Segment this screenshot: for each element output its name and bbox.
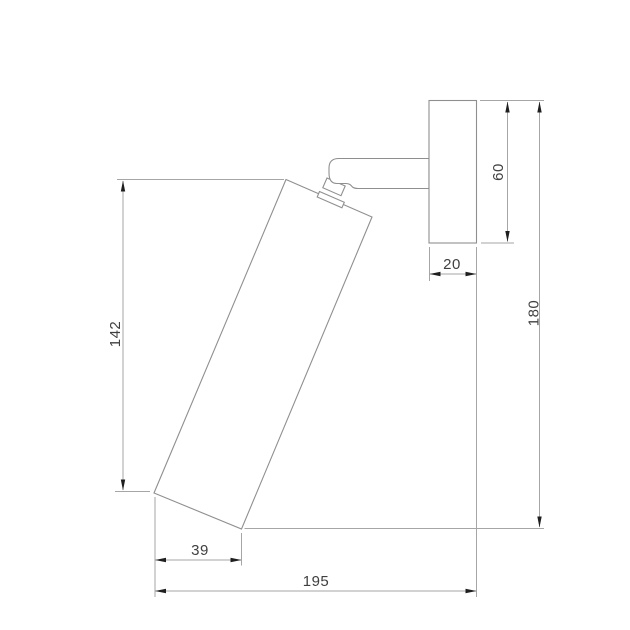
arrow-60-up — [505, 102, 509, 113]
arrow-20-right — [466, 272, 477, 276]
dim-label-142: 142 — [107, 321, 124, 348]
arrow-195-left — [155, 589, 166, 593]
arrow-180-down — [537, 517, 541, 528]
dim-label-39: 39 — [191, 542, 209, 559]
arrow-20-left — [430, 272, 441, 276]
fixture-outline — [154, 101, 477, 530]
drawing-canvas: 142 20 60 180 39 195 — [0, 0, 630, 630]
dim-label-180: 180 — [526, 300, 543, 327]
arrow-142-up — [121, 181, 125, 192]
dim-label-20: 20 — [443, 256, 461, 273]
dimension-drawing: 142 20 60 180 39 195 — [0, 0, 630, 630]
dim-label-60: 60 — [490, 163, 507, 181]
arrow-180-up — [537, 102, 541, 113]
arrow-60-down — [505, 231, 509, 242]
arrow-142-down — [121, 480, 125, 491]
lamp-body — [154, 180, 372, 530]
mounting-arm — [329, 159, 429, 189]
arrow-195-right — [466, 589, 477, 593]
arrow-39-left — [155, 558, 166, 562]
dim-label-195: 195 — [303, 573, 330, 590]
arrow-39-right — [231, 558, 242, 562]
wall-plate — [429, 101, 477, 244]
